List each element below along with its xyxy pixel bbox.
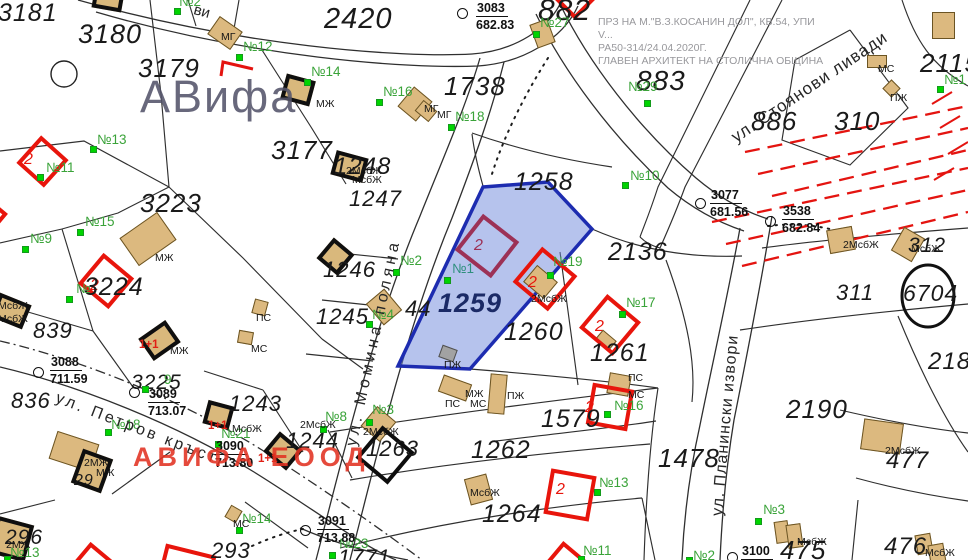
address-marker-label: №11 xyxy=(583,544,612,558)
survey-point-id: 3077 xyxy=(710,188,742,204)
address-marker-label: №27 xyxy=(540,16,570,30)
address-marker-icon[interactable] xyxy=(937,86,944,93)
parcel-number-label[interactable]: 476 xyxy=(884,535,927,559)
address-marker-label: №1 xyxy=(944,73,966,87)
address-marker-label: №17 xyxy=(626,296,656,310)
parcel-number-label[interactable]: 1738 xyxy=(444,73,506,99)
address-marker-label: №18 xyxy=(455,110,485,124)
address-marker-icon[interactable] xyxy=(594,489,601,496)
survey-point: 3083682.83 xyxy=(476,0,514,32)
map-canvas[interactable]: 2222222 31813180317924203177124812471246… xyxy=(0,0,968,560)
building-type-label: МсбЖ xyxy=(911,244,941,255)
plan-note-line3: РА50-314/24.04.2020Г. xyxy=(598,42,823,55)
building-type-label: ПС xyxy=(445,399,460,410)
survey-point-elevation: 711.59 xyxy=(50,371,88,386)
parcel-number-label[interactable]: 1264 xyxy=(482,502,542,527)
red-tick-marks xyxy=(932,92,968,180)
address-marker-label: №29 xyxy=(628,80,658,94)
survey-point: 3077681.56 xyxy=(710,186,748,219)
parcel-number-label[interactable]: 1245 xyxy=(316,306,369,328)
parcel-number-label[interactable]: 1478 xyxy=(658,445,720,471)
building-type-label: МЖ xyxy=(155,253,173,264)
building-type-label: МС xyxy=(233,519,249,530)
building-type-label: МсбЖ xyxy=(352,175,382,186)
address-marker-label: №2 xyxy=(693,549,715,560)
address-marker-icon[interactable] xyxy=(304,79,311,86)
building-type-label: МС xyxy=(878,64,894,75)
survey-point-circle xyxy=(727,552,738,560)
building-footprint xyxy=(487,373,507,414)
building-type-label: 2МЖ xyxy=(6,540,30,551)
company-watermark: АВИФА ЕООД xyxy=(133,444,370,471)
parcel-number-label[interactable]: 1243 xyxy=(229,393,282,415)
survey-point-id: 3089 xyxy=(148,387,180,403)
building-type-label: МсбЖ xyxy=(0,314,28,325)
survey-point: 3538682.84 xyxy=(782,202,820,235)
building-type-label: ПС xyxy=(628,373,643,384)
parcel-number-label[interactable]: 44 xyxy=(405,298,431,320)
address-marker-label: №3 xyxy=(763,503,785,517)
survey-point-circle xyxy=(129,387,140,398)
parcel-number-label[interactable]: 29 xyxy=(74,473,94,489)
building-type-label: МГ xyxy=(221,32,235,43)
building-type-label: 2МсбЖ xyxy=(363,427,399,438)
survey-point-id: 3088 xyxy=(50,355,82,371)
survey-point-elevation: 682.83 xyxy=(476,17,514,32)
survey-point-circle xyxy=(695,198,706,209)
unit-count-label: 2 xyxy=(595,319,604,335)
parcel-number-label[interactable]: 293 xyxy=(211,540,251,560)
parcel-number-label[interactable]: 3224 xyxy=(84,275,144,300)
address-marker-icon[interactable] xyxy=(533,31,540,38)
parcel-number-label[interactable]: 1247 xyxy=(349,188,402,210)
selected-parcel-number[interactable]: 1259 xyxy=(438,290,502,317)
parcel-number-label[interactable]: 1258 xyxy=(514,170,574,195)
address-marker-label: №9 xyxy=(30,232,52,246)
address-marker-label: №16 xyxy=(383,85,413,99)
building-type-label: МГ xyxy=(437,110,451,121)
building-type-label: 2МсбЖ xyxy=(885,446,921,457)
survey-point-id: 3100 xyxy=(741,544,773,560)
building-type-label: ПЖ xyxy=(444,360,461,371)
selected-parcel-marker-label: №1 xyxy=(452,262,474,276)
address-marker-icon[interactable] xyxy=(236,54,243,61)
address-marker-label: №12 xyxy=(243,40,273,54)
survey-point: 3088711.59 xyxy=(50,353,88,386)
building-type-label: МС xyxy=(251,344,267,355)
parcel-number-label[interactable]: 3223 xyxy=(140,190,202,216)
parcel-number-label[interactable]: 1262 xyxy=(471,438,531,463)
building-type-label: МС xyxy=(470,399,486,410)
survey-point-elevation: 681.56 xyxy=(710,204,748,219)
survey-point-elevation: 713.88 xyxy=(317,530,355,545)
address-marker-label: №15 xyxy=(85,215,115,229)
parcel-number-label[interactable]: 311 xyxy=(836,282,874,304)
survey-point-id: 3083 xyxy=(476,1,508,17)
address-marker-icon[interactable] xyxy=(448,124,455,131)
building-type-label: МС xyxy=(628,390,644,401)
survey-point-circle xyxy=(457,8,468,19)
address-marker-icon[interactable] xyxy=(619,311,626,318)
parcel-number-label[interactable]: 2136 xyxy=(608,240,668,265)
survey-point-elevation: 713.07 xyxy=(148,403,186,418)
parcel-number-label[interactable]: 2189 xyxy=(928,350,968,374)
parcel-number-label[interactable]: 3177 xyxy=(271,137,333,163)
plan-approval-note: ПРЗ НА М."В.З.КОСАНИН ДОЛ", КВ.54, УПИ V… xyxy=(598,16,823,68)
address-marker-icon[interactable] xyxy=(622,182,629,189)
parcel-number-label[interactable]: 1263 xyxy=(366,438,419,460)
unit-count-label: 2 xyxy=(528,275,537,291)
address-marker-label: №14 xyxy=(311,65,341,79)
building-type-label: ПЖ xyxy=(890,93,907,104)
parcel-number-label[interactable]: 1260 xyxy=(504,320,564,345)
address-marker-label: №13 xyxy=(97,133,127,147)
survey-point-elevation: 682.84 xyxy=(782,220,820,235)
plan-note-line2: V... xyxy=(598,29,823,42)
address-marker-icon[interactable] xyxy=(77,229,84,236)
address-marker-label: №16 xyxy=(614,399,644,413)
building-footprint xyxy=(932,12,955,39)
address-marker-label: №19 xyxy=(553,255,583,269)
parcel-number-label[interactable]: 1261 xyxy=(590,341,650,366)
building-type-label: МсбЖ xyxy=(470,488,500,499)
plan-note-line4: ГЛАВЕН АРХИТЕКТ НА СТОЛИЧНА ОБЩИНА xyxy=(598,55,823,68)
building-type-label: 2МсбЖ xyxy=(531,294,567,305)
address-marker-icon[interactable] xyxy=(644,100,651,107)
parcel-number-label[interactable]: 2190 xyxy=(786,396,848,422)
unit-count-label: 2 xyxy=(474,238,483,254)
parcel-number-label[interactable]: 6704 xyxy=(903,282,958,305)
survey-point: 3089713.07 xyxy=(148,385,186,418)
building-type-label: МЖ xyxy=(316,99,334,110)
address-marker-icon[interactable] xyxy=(66,296,73,303)
address-marker-icon[interactable] xyxy=(366,419,373,426)
unit-building-outline xyxy=(543,468,596,521)
building-type-label: МсбЖ xyxy=(232,424,262,435)
address-marker-label: №2 xyxy=(400,254,422,268)
address-marker-icon[interactable] xyxy=(329,552,336,559)
address-marker-label: №11 xyxy=(46,161,75,175)
unit-count-label: 2 xyxy=(556,482,565,498)
parcel-number-label[interactable]: 836 xyxy=(11,390,51,412)
survey-point: 3100 xyxy=(741,542,773,560)
building-type-label: МЖ xyxy=(170,346,188,357)
parcel-number-label[interactable]: 1246 xyxy=(323,259,376,281)
parcel-number-label[interactable]: 839 xyxy=(33,320,73,342)
survey-point: 3091713.88 xyxy=(317,512,355,545)
parcel-number-label[interactable]: 3180 xyxy=(78,21,142,48)
building-type-label: ПЖ xyxy=(507,391,524,402)
building-type-label: 2МсбЖ xyxy=(843,240,879,251)
building-type-label: МсбЖ xyxy=(925,548,955,559)
address-marker-icon[interactable] xyxy=(37,174,44,181)
address-marker-icon[interactable] xyxy=(90,146,97,153)
address-marker-icon[interactable] xyxy=(174,8,181,15)
address-marker-icon[interactable] xyxy=(22,246,29,253)
address-marker-icon[interactable] xyxy=(376,99,383,106)
selected-parcel-marker-icon[interactable] xyxy=(444,277,451,284)
building-type-label: МсбЖ xyxy=(797,537,827,548)
address-marker-label: №3 xyxy=(372,403,394,417)
vendor-logo-watermark: АВифа xyxy=(140,74,297,119)
survey-point-id: 3538 xyxy=(782,204,814,220)
parcel-number-label[interactable]: 310 xyxy=(834,108,880,134)
address-marker-label: № xyxy=(76,282,90,296)
building-type-label: 1+1 xyxy=(139,340,159,352)
building-type-label: МсбЖ xyxy=(0,301,28,312)
survey-point-circle xyxy=(33,367,44,378)
parcel-number-label[interactable]: 3181 xyxy=(0,1,58,26)
address-marker-icon[interactable] xyxy=(547,272,554,279)
building-type-label: МЖ xyxy=(96,468,114,479)
small-circle-feature xyxy=(51,61,77,87)
address-marker-label: №10 xyxy=(630,169,660,183)
unit-count-label: 2 xyxy=(24,152,33,168)
address-marker-label: №13 xyxy=(599,476,629,490)
address-marker-icon[interactable] xyxy=(755,518,762,525)
survey-point-id: 3091 xyxy=(317,514,349,530)
building-type-label: МЖ xyxy=(465,389,483,400)
survey-point-circle xyxy=(765,216,776,227)
plan-note-line1: ПРЗ НА М."В.З.КОСАНИН ДОЛ", КВ.54, УПИ xyxy=(598,16,823,29)
address-marker-icon[interactable] xyxy=(604,411,611,418)
parcel-number-label[interactable]: 2420 xyxy=(324,5,393,34)
building-type-label: ПС xyxy=(256,313,271,324)
parcel-number-label[interactable]: 1579 xyxy=(541,407,601,432)
survey-point-circle xyxy=(300,525,311,536)
building-type-label: 1+1 xyxy=(208,421,228,433)
building-type-label: 2МсбЖ xyxy=(300,420,336,431)
